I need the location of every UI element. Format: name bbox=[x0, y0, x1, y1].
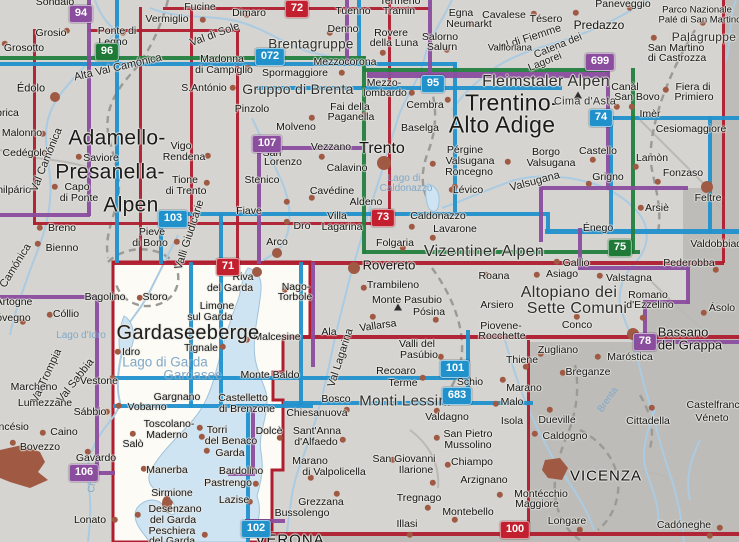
map-label: Feltre bbox=[695, 193, 722, 204]
map-label: Gallio bbox=[563, 258, 590, 269]
map-label: Baselga bbox=[401, 123, 439, 134]
map-label: Arsiero bbox=[480, 300, 513, 311]
map-label: Ilarione bbox=[399, 465, 433, 476]
map-label: Artogne bbox=[0, 297, 32, 308]
map-label: Bienno bbox=[46, 243, 79, 254]
map-label: Mezzocorona bbox=[313, 57, 376, 68]
map-label: del Grappa bbox=[658, 339, 722, 352]
map-label: Cima d'Asta bbox=[554, 97, 616, 108]
map-label: Vezzano bbox=[311, 142, 351, 153]
map-label: Malcesine bbox=[253, 332, 300, 343]
sheet-number-badge[interactable]: 103 bbox=[158, 210, 188, 228]
map-label: Pósina bbox=[413, 307, 445, 318]
map-label: Breno bbox=[48, 223, 76, 234]
map-label: Arzignano bbox=[460, 475, 507, 486]
map-label: lombardo bbox=[363, 88, 407, 99]
map-label: Caldogno bbox=[543, 431, 588, 442]
map-label: Grosio bbox=[36, 28, 67, 39]
sheet-number-badge[interactable]: 699 bbox=[585, 53, 615, 71]
map-label: Presanella- bbox=[55, 162, 165, 183]
map-label: Valdobbiadene bbox=[690, 239, 739, 250]
map-label: Gardasee bbox=[163, 368, 222, 382]
map-label: Rocchette bbox=[478, 331, 525, 342]
map-label: Caino bbox=[50, 427, 77, 438]
map-label: Longare bbox=[548, 516, 587, 527]
sheet-number-badge[interactable]: 102 bbox=[241, 520, 271, 538]
sheet-number-badge[interactable]: 107 bbox=[252, 135, 282, 153]
map-label: Tignale bbox=[184, 343, 218, 354]
map-label: Tramin bbox=[383, 6, 415, 17]
map-label: Calavino bbox=[327, 163, 368, 174]
map-label: Asiago bbox=[546, 269, 578, 280]
town-dot bbox=[377, 156, 391, 170]
sheet-number-badge[interactable]: 72 bbox=[285, 0, 309, 18]
map-label: Breganze bbox=[566, 367, 611, 378]
map-label: Recoaro bbox=[376, 366, 416, 377]
map-label: Roana bbox=[479, 271, 510, 282]
map-label: San Giovanni bbox=[372, 454, 435, 465]
map-label: Saviore bbox=[83, 153, 119, 164]
map-label: Dueville bbox=[538, 415, 575, 426]
map-label: Madonna bbox=[200, 54, 244, 65]
sheet-boundary-line bbox=[0, 213, 90, 217]
map-label: del Garda bbox=[150, 515, 196, 526]
map-label: Limone bbox=[200, 301, 234, 312]
map-label: Bardolino bbox=[219, 466, 263, 477]
map-label: Cittadella bbox=[626, 416, 670, 427]
map-label: Pastrengo bbox=[204, 478, 252, 489]
sheet-number-badge[interactable]: 683 bbox=[442, 387, 472, 405]
map-label: Gardaseeberge bbox=[117, 323, 260, 343]
map-label: Cavalese bbox=[482, 10, 526, 21]
sheet-boundary-line bbox=[540, 186, 688, 190]
map-label: Malonno bbox=[2, 128, 42, 139]
map-label: Pinzolo bbox=[235, 104, 269, 115]
map-label: Imèr bbox=[640, 109, 661, 120]
map-label: Valsugana bbox=[527, 158, 576, 169]
sheet-boundary-line bbox=[0, 56, 365, 60]
map-label: Véneto bbox=[695, 413, 728, 424]
map-label: Pederobba bbox=[663, 258, 714, 269]
map-label: Vigo bbox=[171, 141, 192, 152]
map-label: di Brenzone bbox=[219, 404, 275, 415]
map-label: Salurn bbox=[427, 42, 457, 53]
map-label: Spormaggiore bbox=[262, 68, 328, 79]
map-label: Cadóneghe bbox=[657, 520, 711, 531]
map-label: di Ponte bbox=[60, 193, 99, 204]
map-label: Marcheno bbox=[11, 382, 58, 393]
map-label: Stenico bbox=[244, 175, 279, 186]
map-label: Palé di San Martino bbox=[659, 15, 739, 25]
map-label: Lago d'Idro bbox=[56, 331, 106, 341]
sheet-boundary-line bbox=[595, 116, 739, 120]
map-label: Arco bbox=[266, 237, 288, 248]
sheet-number-badge[interactable]: 73 bbox=[371, 209, 395, 227]
map-label: Grigno bbox=[592, 172, 624, 183]
map-label: Maróstica bbox=[607, 352, 653, 363]
map-label: Bovezzo bbox=[20, 442, 60, 453]
map-label: Bagolino bbox=[85, 292, 126, 303]
sheet-number-badge[interactable]: 072 bbox=[255, 48, 285, 66]
map-label: Rendena bbox=[163, 152, 206, 163]
map-label: Aldeno bbox=[350, 197, 383, 208]
map-label: del Benaco bbox=[205, 436, 258, 447]
map-label: Lumezzane bbox=[18, 398, 72, 409]
map-label: Primiero bbox=[674, 92, 713, 103]
map-label: Roncegno bbox=[445, 167, 493, 178]
map-label: Castelletto bbox=[218, 393, 268, 404]
map-label: Bóvegno bbox=[0, 313, 31, 324]
sheet-number-badge[interactable]: 71 bbox=[216, 258, 240, 276]
map-label: Adamello- bbox=[68, 128, 165, 149]
sheet-boundary-line bbox=[546, 212, 550, 233]
map-label: Vobarno bbox=[127, 402, 166, 413]
map-label: Lévico bbox=[453, 185, 483, 196]
map-label: Manerba bbox=[146, 465, 187, 476]
map-label: Vermiglio bbox=[145, 14, 188, 25]
map-label: San Pietro bbox=[443, 429, 492, 440]
map-label: Fleimstaler Alpen bbox=[482, 74, 610, 90]
map-label: Paneveggio bbox=[595, 0, 650, 9]
map-label: Maderno bbox=[146, 430, 187, 441]
map-label: S.António bbox=[181, 83, 227, 94]
map-label: Tione bbox=[172, 175, 198, 186]
map-label: Marano bbox=[292, 456, 328, 467]
map-label: Pérgine bbox=[447, 145, 483, 156]
map-label: Schio bbox=[457, 377, 483, 388]
map-label: Fiave bbox=[236, 206, 262, 217]
map-label: Sirmione bbox=[151, 488, 192, 499]
sheet-boundary-line bbox=[311, 262, 315, 367]
map-label: Cavédine bbox=[310, 186, 354, 197]
map-label: Trambileno bbox=[367, 280, 419, 291]
map-label: di Valpolicella bbox=[302, 467, 365, 478]
map-label: del Garda bbox=[149, 536, 195, 542]
map-label: Predazzo bbox=[574, 19, 625, 31]
map-label: Bosco bbox=[321, 394, 350, 405]
map-label: Alpen bbox=[103, 195, 158, 216]
map-label: Grosotto bbox=[4, 43, 44, 54]
map-label: Sant'Anna bbox=[293, 426, 341, 437]
map-label: Valdagno bbox=[425, 412, 469, 423]
map-label: Dro bbox=[294, 221, 311, 232]
map-label: Monte Pasubio bbox=[372, 295, 442, 306]
map-label: sul Garda bbox=[187, 312, 233, 323]
sheet-number-badge[interactable]: 74 bbox=[589, 109, 613, 127]
map-label: Schilpário bbox=[0, 185, 31, 196]
map-label: Isola bbox=[501, 416, 523, 427]
sheet-number-badge[interactable]: 75 bbox=[608, 239, 632, 257]
map-label: Valsugana bbox=[446, 156, 495, 167]
map-label: Gavardo bbox=[76, 453, 116, 464]
map-label: Monti Lessini bbox=[359, 394, 450, 409]
map-label: Tuenno bbox=[335, 6, 370, 17]
map-label: Pieve bbox=[139, 227, 165, 238]
map-label: Lavarone bbox=[433, 224, 477, 235]
map-label: Marano bbox=[506, 383, 542, 394]
map-label: Thiene bbox=[506, 355, 538, 366]
map-label: Caldonazzo bbox=[380, 184, 433, 194]
sheet-number-badge[interactable]: 101 bbox=[440, 360, 470, 378]
map-label: Ala bbox=[321, 327, 336, 338]
map-label: Valli del bbox=[399, 339, 435, 350]
map-label: Gruppo di Brenta bbox=[242, 82, 353, 96]
sheet-number-badge[interactable]: 95 bbox=[421, 75, 445, 93]
map-label: della Luna bbox=[370, 38, 418, 49]
sheet-boundary-line bbox=[113, 261, 724, 265]
map-label: Sette Comuni bbox=[527, 301, 628, 317]
sheet-boundary-line bbox=[545, 229, 739, 234]
map-label: Garda bbox=[215, 448, 244, 459]
map-label: Mussolino bbox=[444, 440, 491, 451]
map-label: Fonzaso bbox=[663, 168, 703, 179]
map-label: Lonato bbox=[74, 515, 106, 526]
town-dot bbox=[272, 248, 282, 258]
sheet-boundary-line bbox=[363, 68, 609, 72]
map-label: Storo bbox=[142, 292, 167, 303]
map-label: Malo bbox=[501, 397, 524, 408]
map-label: Fucine bbox=[184, 2, 216, 13]
map-label: Áprica bbox=[0, 108, 19, 119]
map-canvas[interactable]: SondaloFucineVermiglioDimaroTuennoTermen… bbox=[0, 0, 739, 542]
map-label: del Garda bbox=[207, 283, 253, 294]
map-label: Concésio bbox=[0, 422, 29, 433]
map-label: Bussolengo bbox=[275, 508, 330, 519]
sheet-number-badge[interactable]: 96 bbox=[95, 43, 119, 61]
map-label: Monte Baldo bbox=[241, 370, 300, 381]
map-label: Conco bbox=[562, 320, 592, 331]
sheet-boundary-line bbox=[539, 186, 543, 242]
sheet-number-badge[interactable]: 94 bbox=[69, 5, 93, 23]
map-label: Lorenzo bbox=[264, 157, 302, 168]
map-label: Paganella bbox=[328, 112, 375, 123]
map-label: Lamòn bbox=[636, 153, 668, 164]
map-label: Sábbio bbox=[74, 407, 107, 418]
sheet-number-badge[interactable]: 78 bbox=[633, 333, 657, 351]
map-label: Pasúbio bbox=[400, 350, 438, 361]
map-label: Ásolo bbox=[709, 303, 735, 314]
map-label: Torri bbox=[207, 425, 227, 436]
map-label: Maggiore bbox=[515, 499, 559, 510]
map-label: Toscolano- bbox=[144, 419, 195, 430]
map-label: Dolcè bbox=[256, 426, 283, 437]
map-label: Villa bbox=[327, 211, 347, 222]
sheet-number-badge[interactable]: 106 bbox=[69, 464, 99, 482]
map-label: Vizentiner Alpen bbox=[424, 244, 544, 260]
sheet-number-badge[interactable]: 100 bbox=[500, 521, 530, 539]
map-label: Chiampo bbox=[451, 457, 493, 468]
map-label: Dimaro bbox=[232, 8, 266, 19]
map-label: Folgaria bbox=[376, 238, 414, 249]
map-label: di Castrozza bbox=[648, 53, 706, 64]
map-label: Egna bbox=[449, 8, 474, 19]
map-label: Zugliano bbox=[538, 345, 578, 356]
map-label: Cesiomaggiore bbox=[656, 124, 727, 135]
map-label: di Campiglio bbox=[195, 65, 253, 76]
map-label: Cóllio bbox=[53, 309, 79, 320]
map-label: Desenzano bbox=[148, 504, 201, 515]
map-label: d'Alfaedo bbox=[294, 437, 337, 448]
map-label: Castelfranco bbox=[687, 400, 739, 411]
map-label: Montebello bbox=[442, 507, 493, 518]
map-label: Lagarina bbox=[322, 222, 363, 233]
map-label: Arsiè bbox=[645, 203, 669, 214]
map-label: Illasi bbox=[396, 519, 417, 530]
map-label: Valfloriana bbox=[488, 43, 532, 53]
map-label: Vestone bbox=[80, 376, 118, 387]
map-label: Molveno bbox=[276, 122, 316, 133]
map-label: Tregnago bbox=[397, 493, 442, 504]
map-label: d'Ezzelino bbox=[626, 300, 674, 311]
map-label: Lazise bbox=[219, 495, 249, 506]
map-label: Capo bbox=[64, 182, 89, 193]
town-dot bbox=[348, 262, 360, 274]
map-label: Altopiano dei bbox=[521, 285, 617, 301]
map-label: VICENZA bbox=[570, 469, 642, 484]
map-label: Énego bbox=[583, 223, 613, 234]
map-label: Alto Adige bbox=[449, 114, 556, 137]
map-label: Salò bbox=[122, 439, 143, 450]
map-label: Denno bbox=[328, 24, 359, 35]
map-label: Cembra bbox=[406, 100, 443, 111]
map-label: Chiesanuova bbox=[286, 408, 347, 419]
map-label: di Bono bbox=[132, 238, 168, 249]
map-label: Grezzana bbox=[298, 497, 344, 508]
map-label: Caldonazzo bbox=[410, 211, 465, 222]
map-label: Torbole bbox=[278, 292, 312, 303]
map-label: di Trento bbox=[166, 186, 207, 197]
map-label: Édolo bbox=[17, 84, 45, 95]
map-label: Rovereto bbox=[363, 259, 416, 272]
map-label: Castello bbox=[579, 146, 617, 157]
map-label: Borgo bbox=[532, 147, 560, 158]
map-label: Ponte di bbox=[98, 26, 137, 37]
map-label: Trento bbox=[359, 141, 405, 157]
map-label: Terme bbox=[388, 378, 417, 389]
map-label: Valstagna bbox=[606, 273, 652, 284]
town-dot bbox=[50, 92, 60, 102]
sheet-boundary-line bbox=[686, 266, 690, 304]
map-label: San Bovo bbox=[614, 92, 660, 103]
